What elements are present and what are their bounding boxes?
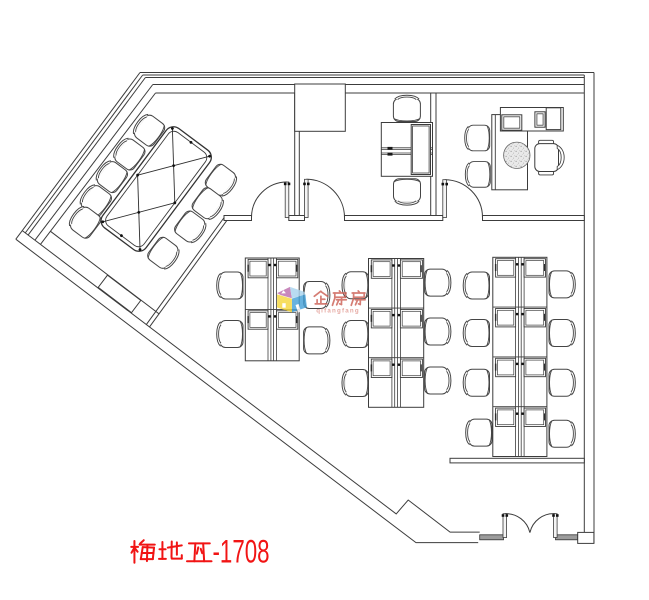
svg-text:qifangfang: qifangfang — [316, 308, 360, 315]
svg-text:-1708: -1708 — [213, 534, 270, 570]
